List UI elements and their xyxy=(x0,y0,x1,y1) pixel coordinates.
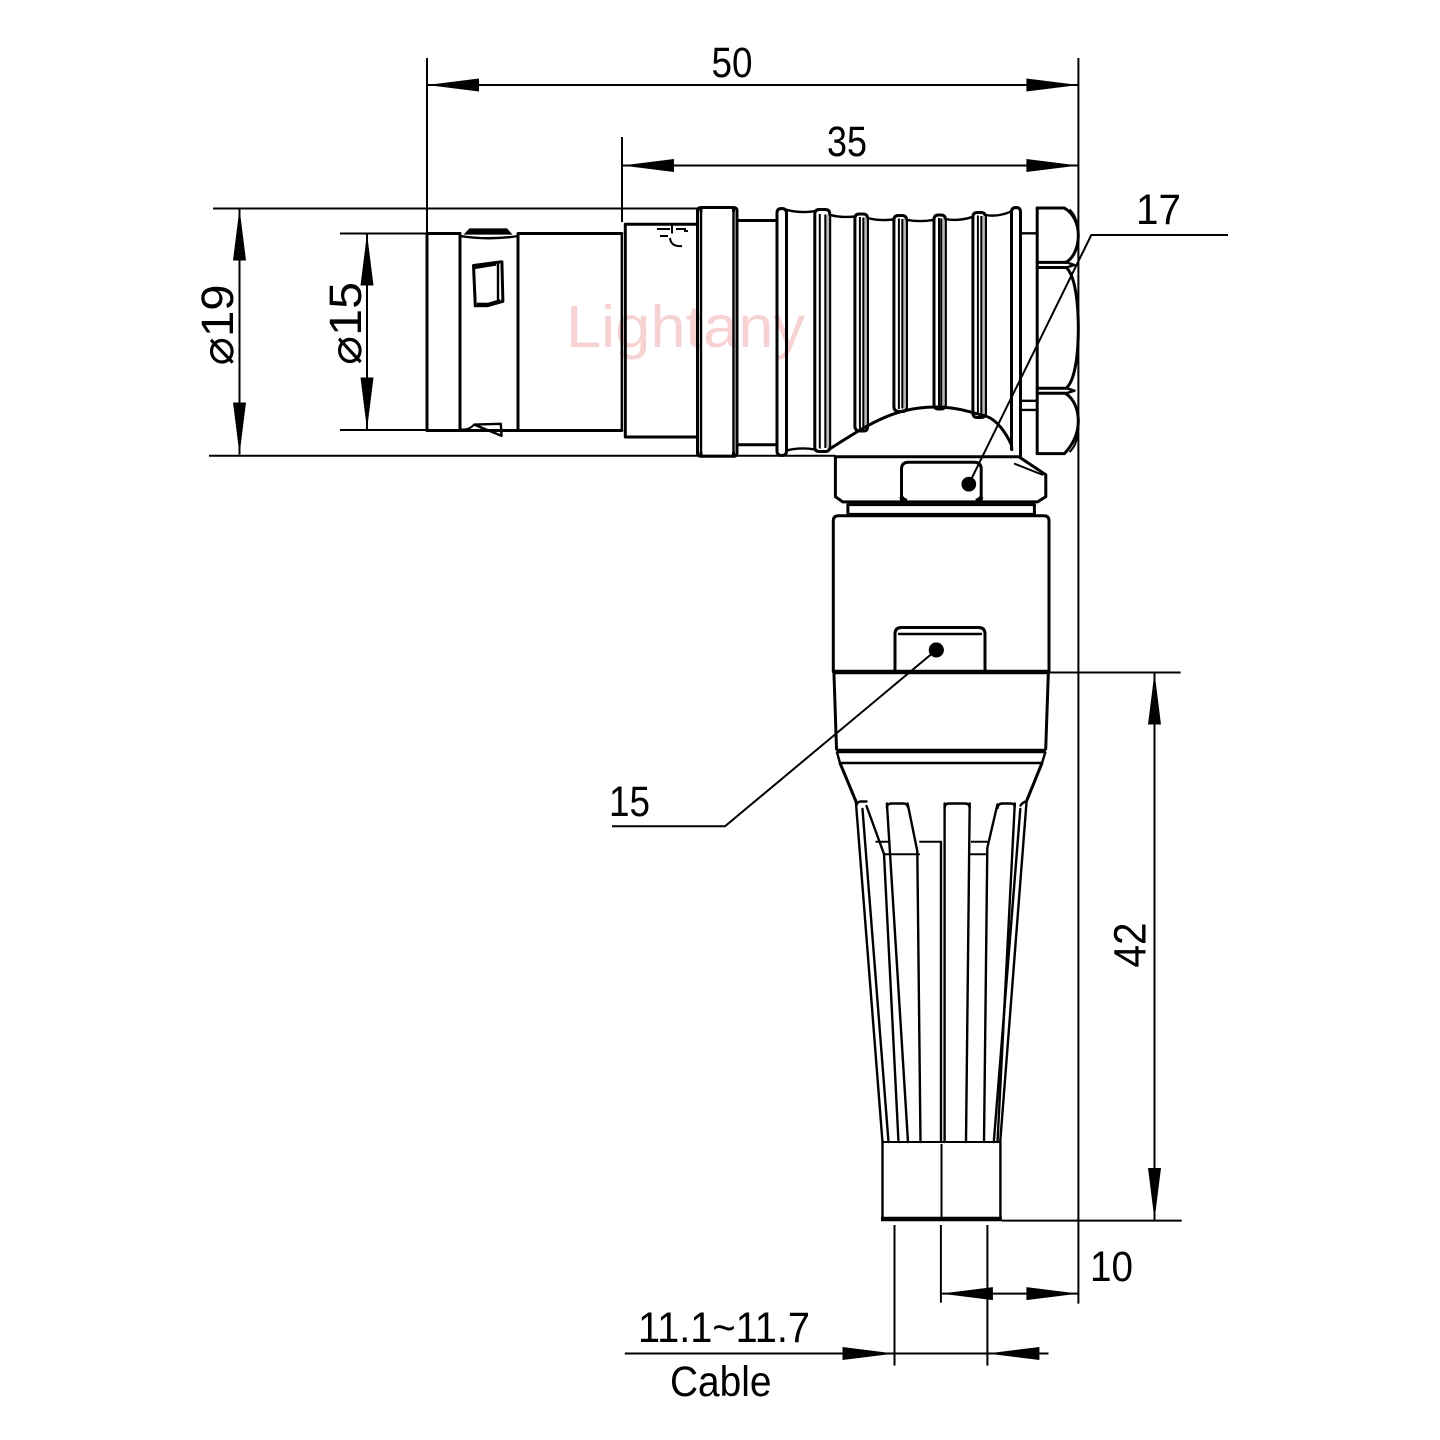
svg-text:42: 42 xyxy=(1105,923,1156,968)
svg-text:15: 15 xyxy=(609,778,650,826)
svg-text:35: 35 xyxy=(827,118,867,166)
svg-text:10: 10 xyxy=(1090,1243,1133,1291)
svg-text:17: 17 xyxy=(1136,186,1181,234)
svg-text:11.1~11.7: 11.1~11.7 xyxy=(638,1304,810,1352)
svg-text:⌀15: ⌀15 xyxy=(320,282,371,365)
svg-text:Cable: Cable xyxy=(670,1358,772,1406)
svg-text:⌀19: ⌀19 xyxy=(192,285,243,366)
svg-text:Lightany: Lightany xyxy=(566,294,806,360)
svg-text:50: 50 xyxy=(712,39,753,87)
